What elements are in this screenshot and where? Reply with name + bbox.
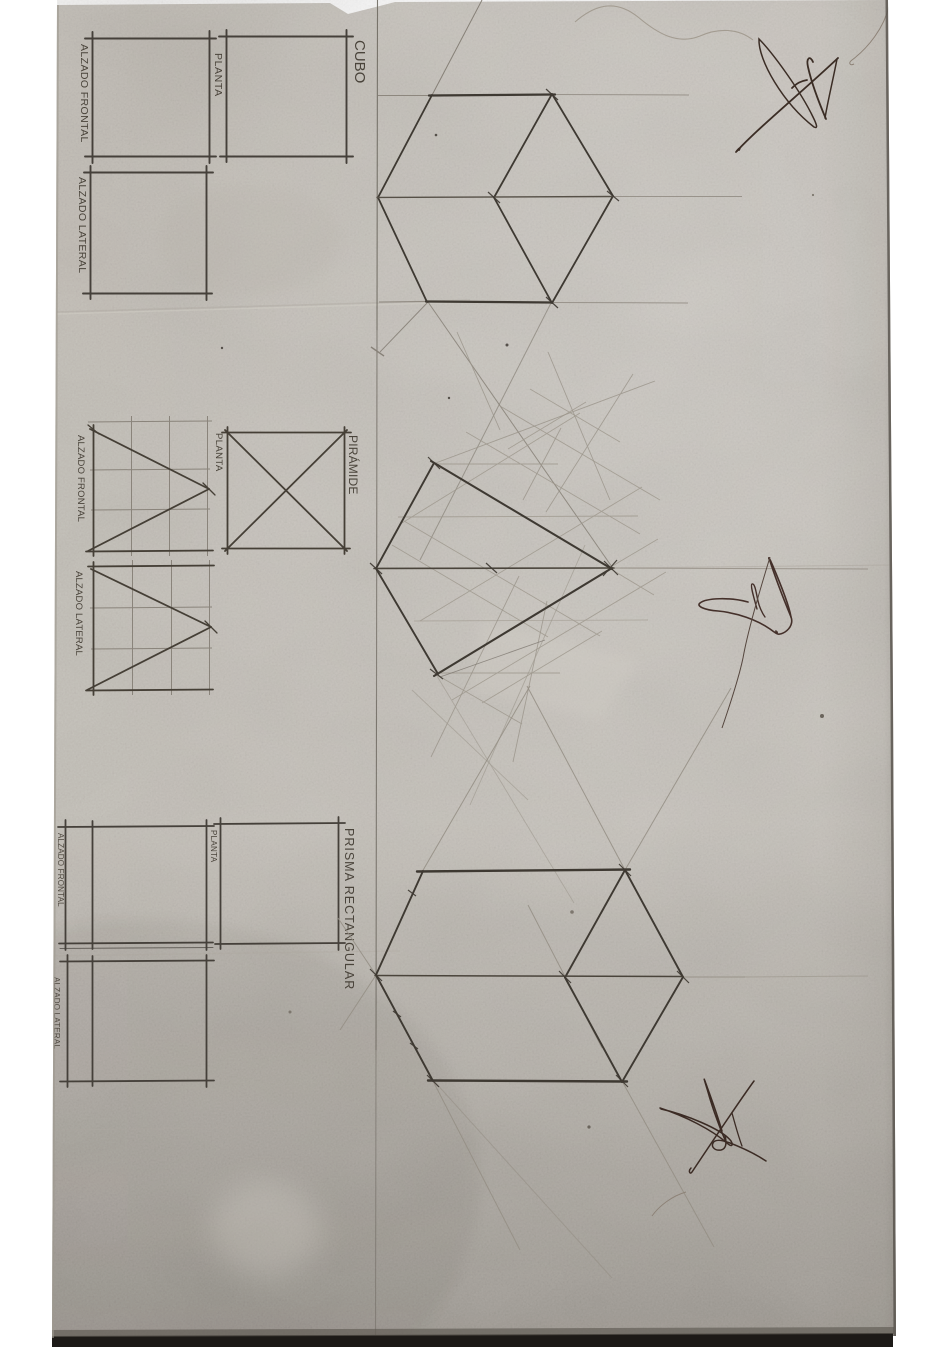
svg-text:ALZADO FRONTAL: ALZADO FRONTAL [56, 833, 65, 907]
svg-text:PIRÁMIDE: PIRÁMIDE [346, 435, 361, 495]
svg-text:ALZADO LATERAL: ALZADO LATERAL [76, 177, 88, 273]
svg-text:PRISMA RECTANGULAR: PRISMA RECTANGULAR [342, 828, 356, 990]
svg-text:ALZADO LATERAL: ALZADO LATERAL [73, 571, 84, 656]
svg-text:PLANTA: PLANTA [213, 433, 224, 472]
svg-text:CUBO: CUBO [351, 40, 368, 83]
svg-text:PLANTA: PLANTA [212, 53, 224, 97]
svg-text:PLANTA: PLANTA [209, 830, 218, 863]
svg-text:ALZADO FRONTAL: ALZADO FRONTAL [75, 435, 86, 522]
svg-text:ALZADO FRONTAL: ALZADO FRONTAL [78, 44, 90, 143]
